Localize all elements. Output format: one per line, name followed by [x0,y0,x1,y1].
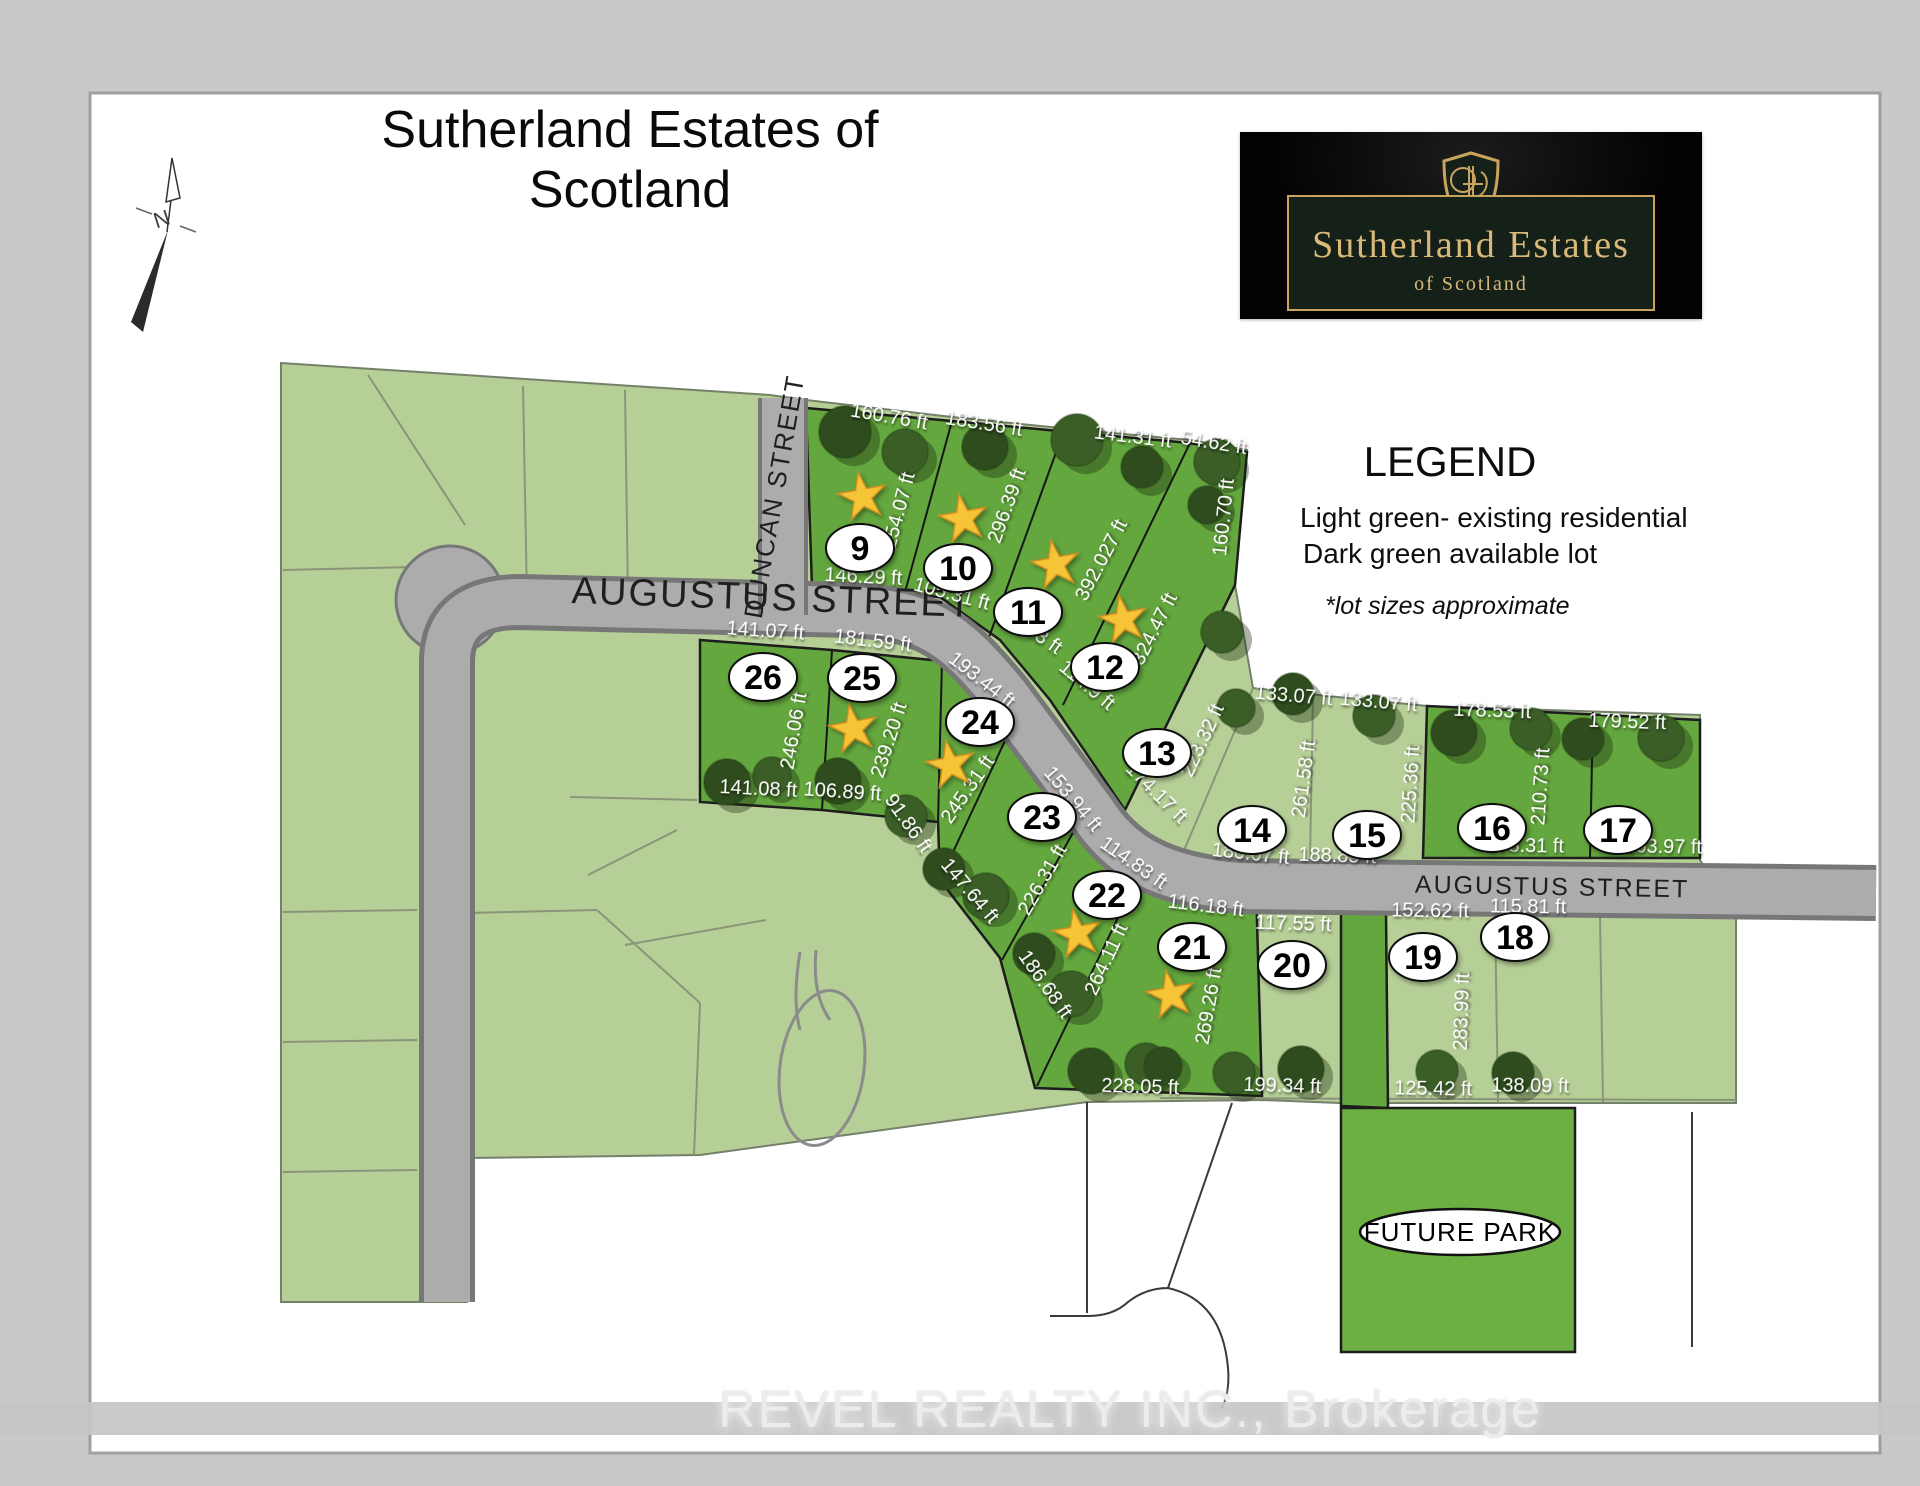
lot-22-number: 22 [1088,877,1126,915]
lot-18-number: 18 [1496,919,1534,957]
lot-16-dimension: 178.53 ft [1453,699,1532,724]
legend-item-dark-green: Dark green available lot [1303,538,1597,570]
lot-16-number: 16 [1473,810,1511,848]
lot-20-number: 20 [1273,947,1311,985]
lot-20-dimension: 199.34 ft [1243,1074,1322,1099]
tree-icon [1201,611,1243,653]
lot-26-dimension: 141.08 ft [719,776,798,802]
lot-20-dimension: 117.55 ft [1255,912,1333,937]
lot-23-number: 23 [1023,799,1061,837]
brand-logo: Sutherland Estates of Scotland [1240,132,1702,319]
lot-15-number: 15 [1348,817,1386,855]
lot-19-dimension: 152.62 ft [1391,899,1470,922]
future-park-text: FUTURE PARK [1364,1217,1557,1247]
lot-17-number: 17 [1599,812,1637,850]
future-park-label: FUTURE PARK [1360,1209,1560,1255]
lot-18-dimension: 138.09 ft [1491,1074,1570,1097]
lot-14-number: 14 [1233,812,1271,850]
legend-item-light-green: Light green- existing residential [1300,502,1688,534]
lot-21-number: 21 [1173,929,1211,967]
park-access-strip [1341,912,1388,1108]
lot-25-number: 25 [843,660,881,698]
lot-17-dimension: 179.52 ft [1588,710,1667,735]
lot-11-number: 11 [1010,594,1046,632]
legend-note: *lot sizes approximate [1325,592,1570,621]
page-title: Sutherland Estates of Scotland [280,100,980,220]
lot-19-number: 19 [1404,939,1442,977]
lot-10-number: 10 [939,550,977,588]
logo-subtitle: of Scotland [1289,273,1653,296]
plat-map-page: N DUNCAN STREETAUGUSTUS STREETAUGUSTUS S… [0,0,1920,1486]
lot-26-number: 26 [744,659,782,697]
lot-19-dimension: 283.99 ft [1450,972,1475,1051]
lot-21-dimension: 228.05 ft [1101,1075,1180,1100]
lot-24-number: 24 [961,704,999,742]
tree-icon [1121,446,1163,488]
logo-name: Sutherland Estates [1289,223,1653,267]
lot-13-number: 13 [1138,735,1176,773]
legend-title: LEGEND [1240,438,1660,486]
watermark-text: REVEL REALTY INC., Brokerage [340,1380,1920,1440]
logo-panel: Sutherland Estates of Scotland [1287,195,1655,311]
tree-icon [882,429,928,475]
lot-19-dimension: 125.42 ft [1394,1077,1473,1100]
lot-12-number: 12 [1086,649,1124,687]
lot-9-number: 9 [851,530,870,568]
